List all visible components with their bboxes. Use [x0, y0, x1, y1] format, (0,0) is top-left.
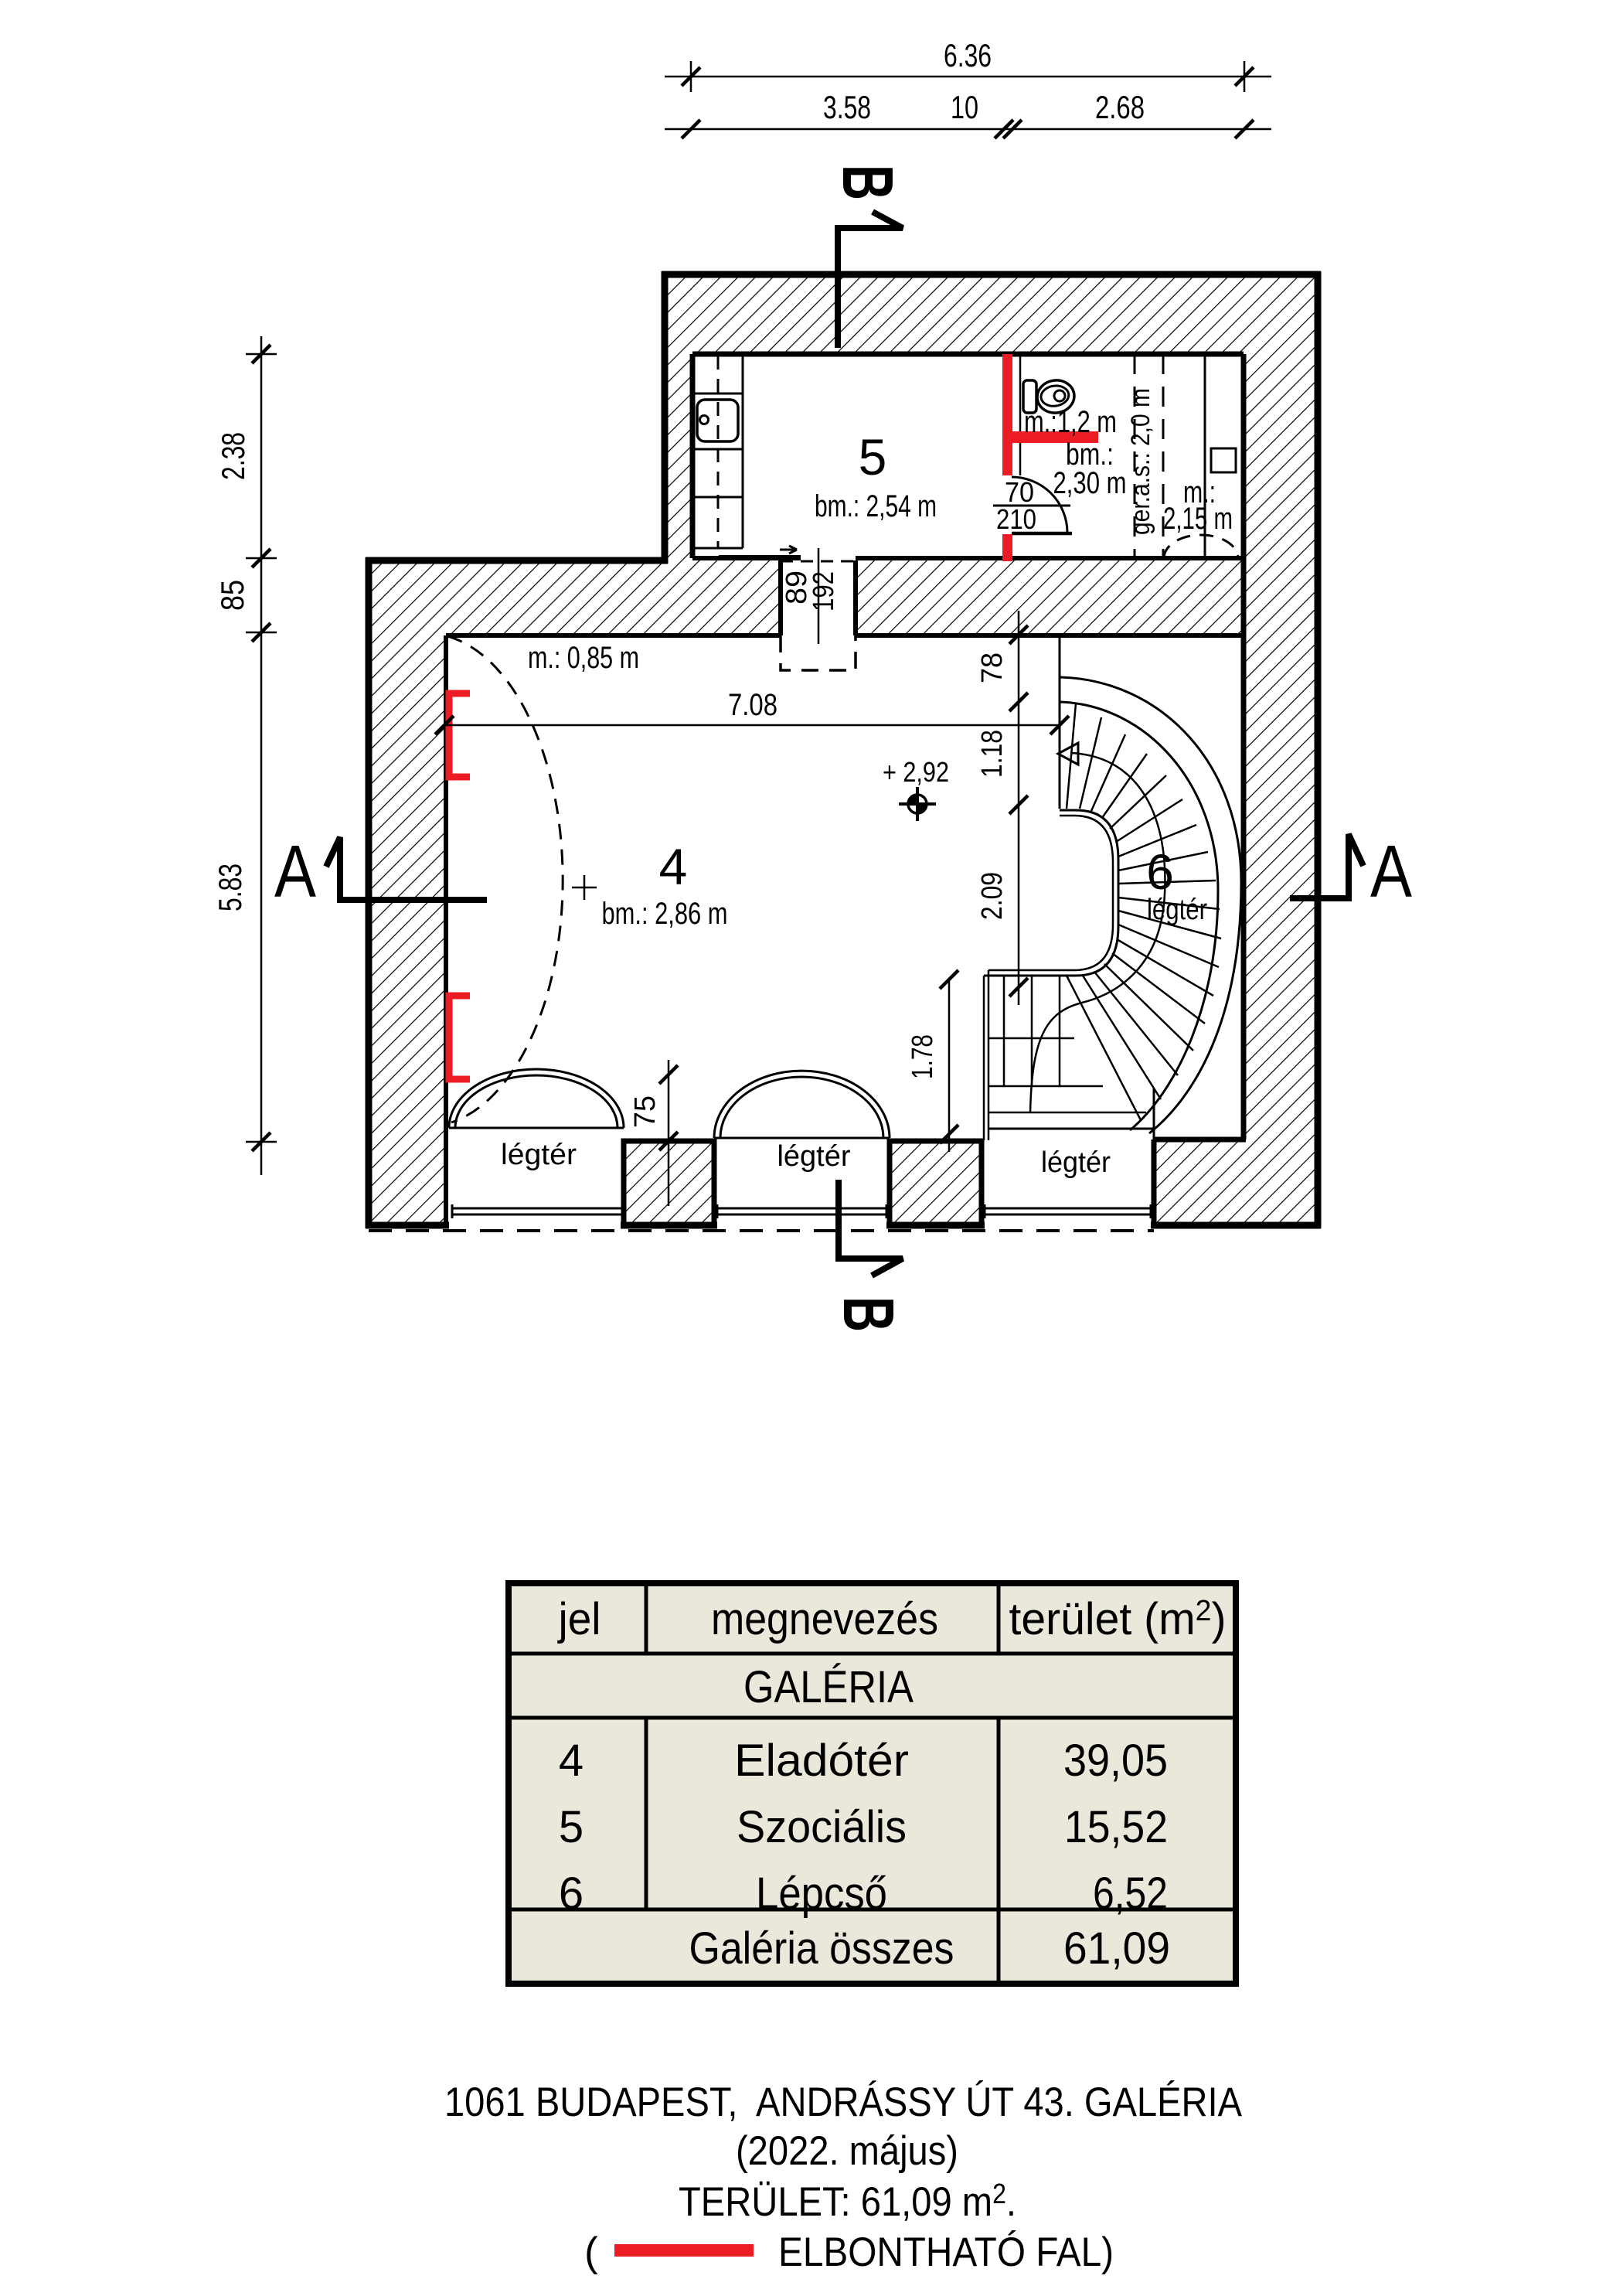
svg-text:61,09: 61,09 — [1063, 1923, 1170, 1974]
svg-text:2.38: 2.38 — [215, 432, 251, 480]
svg-text:6: 6 — [1146, 844, 1174, 900]
svg-text:2.09: 2.09 — [976, 872, 1009, 920]
svg-text:Galéria összes: Galéria összes — [689, 1923, 954, 1974]
svg-text:1.78: 1.78 — [907, 1034, 939, 1079]
svg-text:B: B — [828, 165, 908, 200]
svg-text:A: A — [274, 830, 316, 913]
svg-text:Lépcső: Lépcső — [756, 1868, 887, 1919]
svg-text:A: A — [1370, 830, 1412, 913]
svg-text:jel: jel — [557, 1594, 601, 1644]
svg-text:GALÉRIA: GALÉRIA — [743, 1662, 914, 1712]
svg-text:ELBONTHATÓ FAL): ELBONTHATÓ FAL) — [778, 2230, 1114, 2275]
svg-text:192: 192 — [808, 571, 840, 611]
svg-text:m.: 0,85 m: m.: 0,85 m — [528, 641, 639, 675]
svg-text:(: ( — [584, 2230, 598, 2275]
svg-text:85: 85 — [214, 580, 250, 611]
svg-text:39,05: 39,05 — [1063, 1736, 1168, 1786]
svg-text:(2022. május): (2022. május) — [736, 2128, 958, 2174]
svg-text:6: 6 — [559, 1868, 584, 1919]
svg-text:78: 78 — [976, 652, 1009, 683]
svg-text:bm.: 2,86 m: bm.: 2,86 m — [602, 897, 728, 931]
svg-text:2.68: 2.68 — [1095, 89, 1145, 125]
svg-text:2,15 m: 2,15 m — [1163, 502, 1233, 536]
svg-text:210: 210 — [996, 503, 1036, 535]
svg-text:4: 4 — [659, 838, 688, 895]
svg-text:5.83: 5.83 — [212, 864, 248, 911]
svg-text:5: 5 — [859, 428, 887, 485]
svg-text:6.36: 6.36 — [944, 37, 992, 73]
svg-text:Eladótér: Eladótér — [734, 1736, 909, 1786]
svg-text:terület (m2): terület (m2) — [1009, 1594, 1227, 1644]
svg-text:3.58: 3.58 — [823, 89, 871, 125]
svg-text:B: B — [829, 1296, 909, 1332]
svg-text:1.18: 1.18 — [976, 730, 1009, 778]
svg-text:m.:1,2 m: m.:1,2 m — [1024, 405, 1117, 439]
svg-text:2,30 m: 2,30 m — [1053, 466, 1127, 500]
svg-text:+ 2,92: + 2,92 — [883, 756, 949, 788]
svg-text:7.08: 7.08 — [728, 688, 777, 722]
svg-text:ger.a.s.: 2,0 m: ger.a.s.: 2,0 m — [1126, 388, 1155, 535]
svg-text:15,52: 15,52 — [1064, 1802, 1168, 1852]
svg-text:TERÜLET: 61,09 m2.: TERÜLET: 61,09 m2. — [679, 2178, 1016, 2225]
svg-text:légtér: légtér — [1147, 894, 1207, 926]
svg-text:6,52: 6,52 — [1093, 1868, 1168, 1919]
svg-text:75: 75 — [629, 1095, 662, 1128]
svg-text:5: 5 — [559, 1802, 584, 1852]
svg-text:bm.: 2,54 m: bm.: 2,54 m — [815, 489, 937, 523]
svg-text:légtér: légtér — [777, 1140, 851, 1173]
svg-text:légtér: légtér — [1041, 1146, 1111, 1179]
svg-text:10: 10 — [951, 89, 978, 125]
svg-text:légtér: légtér — [501, 1139, 577, 1171]
svg-text:4: 4 — [559, 1736, 584, 1786]
svg-text:megnevezés: megnevezés — [711, 1594, 938, 1644]
svg-text:1061 BUDAPEST, ANDRÁSSY ÚT 43: 1061 BUDAPEST, ANDRÁSSY ÚT 43. GALÉRIA — [444, 2080, 1243, 2125]
svg-text:Szociális: Szociális — [737, 1802, 907, 1852]
